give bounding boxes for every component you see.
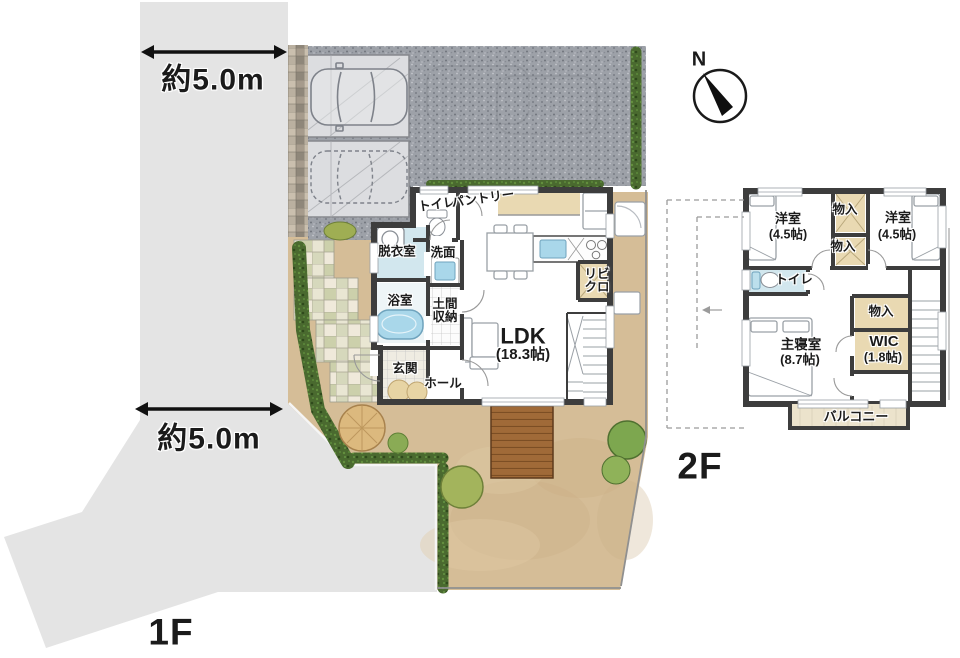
kitchen-counter <box>533 236 611 262</box>
wash-basin <box>431 258 459 284</box>
label-doma-storage: 土間収納 <box>431 298 459 324</box>
sofa <box>461 318 498 369</box>
tree-green-2 <box>608 421 646 459</box>
label-toilet-2f: トイレ <box>775 273 813 286</box>
roof-outline-dashed <box>667 200 744 428</box>
label-master-size: (8.7帖) <box>780 353 820 367</box>
label-washroom: 洗面 <box>430 246 455 259</box>
label-ldk-size: (18.3帖) <box>496 347 550 363</box>
label-closet-top: 物入 <box>832 203 857 216</box>
label-entrance: 玄関 <box>392 362 417 375</box>
label-wic: WIC <box>869 334 898 350</box>
roof-arrow <box>702 306 722 314</box>
tree-tan <box>339 405 385 451</box>
tree-green-1 <box>441 466 483 508</box>
floor1-label: 1F <box>148 614 193 653</box>
label-wic-size: (1.8帖) <box>864 351 902 364</box>
dimension-side-label: 約5.0m <box>157 423 260 455</box>
site-plan-graphic <box>0 0 960 658</box>
wood-deck <box>491 406 553 478</box>
label-closet-east: 物入 <box>868 305 893 318</box>
bush <box>324 222 356 240</box>
paver-strip <box>288 45 308 237</box>
tree-green-3 <box>602 456 630 484</box>
label-closet-mid: 物入 <box>830 240 855 253</box>
floor2-label: 2F <box>677 448 722 487</box>
label-east-room-size: (4.5帖) <box>878 228 916 241</box>
refrigerator <box>583 193 609 229</box>
label-bathroom: 浴室 <box>387 294 412 307</box>
car-outline-1 <box>311 63 407 131</box>
label-west-room: 洋室 <box>775 212 801 226</box>
compass-north-icon <box>694 70 746 122</box>
compass-n-label: N <box>692 50 706 71</box>
label-ldk: LDK <box>500 324 545 347</box>
bed-east <box>912 194 940 260</box>
label-living-closet: リビクロ <box>583 268 611 294</box>
bathtub <box>376 310 423 339</box>
dining-table <box>487 225 533 279</box>
label-east-room: 洋室 <box>885 211 911 225</box>
label-dressing-room: 脱衣室 <box>378 245 416 258</box>
entrance-floor <box>381 350 427 402</box>
tree-bush-small <box>388 433 408 453</box>
label-hall: ホール <box>424 377 462 390</box>
label-balcony: バルコニー <box>824 410 889 424</box>
label-west-room-size: (4.5帖) <box>769 228 807 241</box>
dimension-top-label: 約5.0m <box>161 64 264 96</box>
label-master-bedroom: 主寝室 <box>781 338 822 352</box>
floorplan-canvas: 約5.0m 約5.0m 1F 2F N トイレ パントリー 脱衣室 洗面 浴室 … <box>0 0 960 658</box>
